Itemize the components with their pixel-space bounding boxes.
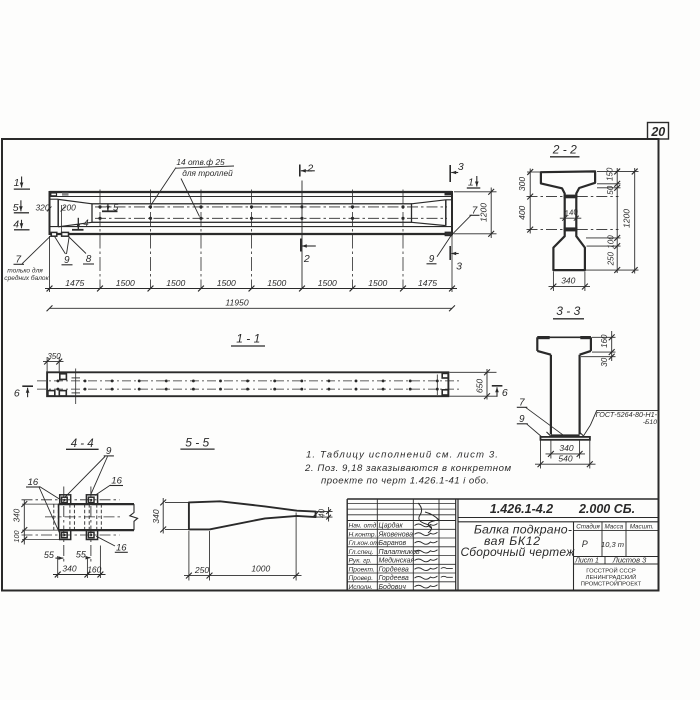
svg-text:2. Поз. 9,18 заказываются в ко: 2. Поз. 9,18 заказываются в конкретном	[304, 463, 512, 474]
svg-text:2 - 2: 2 - 2	[552, 143, 577, 157]
svg-text:6: 6	[14, 388, 20, 400]
svg-text:ГОССТРОЙ СССР: ГОССТРОЙ СССР	[586, 566, 636, 574]
svg-text:340: 340	[559, 443, 573, 453]
svg-text:340: 340	[13, 508, 22, 522]
svg-text:30: 30	[600, 357, 609, 366]
svg-text:10,3 т: 10,3 т	[601, 540, 624, 549]
svg-text:1.426.1-4.2: 1.426.1-4.2	[490, 502, 553, 516]
svg-text:140: 140	[564, 207, 579, 218]
svg-text:1: 1	[468, 176, 474, 188]
svg-text:5: 5	[113, 203, 119, 214]
svg-text:6: 6	[502, 387, 508, 399]
svg-text:7: 7	[472, 205, 478, 216]
svg-text:Р: Р	[582, 539, 588, 549]
svg-text:100: 100	[607, 235, 616, 249]
svg-text:Мединская: Мединская	[379, 557, 415, 565]
svg-text:4: 4	[83, 218, 88, 229]
svg-text:250: 250	[607, 251, 616, 266]
svg-text:1500: 1500	[217, 278, 236, 288]
svg-text:20: 20	[650, 125, 665, 139]
svg-text:55: 55	[76, 549, 87, 559]
svg-text:540: 540	[558, 454, 572, 464]
svg-text:1200: 1200	[479, 203, 489, 222]
svg-text:1500: 1500	[318, 278, 337, 288]
svg-text:Нач. отд: Нач. отд	[349, 522, 377, 530]
svg-text:1 - 1: 1 - 1	[236, 332, 260, 346]
svg-text:-Б10: -Б10	[643, 419, 657, 426]
svg-text:50: 50	[606, 185, 615, 194]
svg-text:4: 4	[13, 219, 19, 231]
svg-text:3 - 3: 3 - 3	[556, 304, 580, 318]
svg-text:ГОСТ-5264-80-Н1-: ГОСТ-5264-80-Н1-	[596, 410, 658, 419]
svg-text:Провер.: Провер.	[349, 575, 374, 582]
svg-text:2: 2	[303, 253, 310, 265]
svg-text:для троллей: для троллей	[182, 168, 233, 178]
svg-text:Рук. гр.: Рук. гр.	[349, 558, 372, 565]
svg-text:1000: 1000	[251, 564, 270, 574]
svg-text:средних балок: средних балок	[4, 274, 49, 282]
svg-text:Проект.: Проект.	[349, 566, 375, 573]
svg-text:Н.контр.: Н.контр.	[349, 531, 377, 538]
svg-text:250: 250	[194, 565, 209, 575]
svg-text:1475: 1475	[65, 278, 84, 288]
svg-text:5 - 5: 5 - 5	[185, 436, 209, 450]
svg-text:1200: 1200	[622, 209, 632, 228]
svg-text:ЛЕНИНГРАДСКИЙ: ЛЕНИНГРАДСКИЙ	[586, 573, 637, 581]
svg-text:Сборочный чертеж: Сборочный чертеж	[460, 545, 575, 559]
svg-text:2.000 СБ.: 2.000 СБ.	[578, 502, 635, 516]
svg-text:Исполн.: Исполн.	[349, 584, 374, 591]
svg-text:Гордеева: Гордеева	[379, 574, 409, 582]
svg-text:8: 8	[86, 254, 92, 265]
svg-text:Гордеева: Гордеева	[379, 565, 409, 573]
svg-text:только для: только для	[7, 266, 43, 274]
svg-text:300: 300	[517, 177, 527, 191]
svg-text:Палатников: Палатников	[379, 549, 421, 556]
svg-text:340: 340	[62, 564, 76, 574]
svg-text:1475: 1475	[418, 278, 437, 288]
svg-text:Стадия: Стадия	[576, 523, 600, 531]
svg-text:350: 350	[47, 352, 61, 361]
svg-text:Масса: Масса	[604, 524, 623, 531]
svg-text:200: 200	[61, 203, 76, 213]
svg-text:400: 400	[517, 205, 527, 219]
svg-text:340: 340	[561, 275, 575, 285]
svg-text:Листов 3: Листов 3	[612, 555, 647, 564]
svg-text:Гл.кон.от: Гл.кон.от	[349, 540, 380, 547]
svg-text:Бодович: Бодович	[379, 583, 407, 591]
svg-text:40: 40	[317, 509, 326, 518]
svg-text:2: 2	[306, 163, 313, 175]
svg-text:Масшт.: Масшт.	[630, 524, 654, 531]
svg-text:проекте по черт 1.426.1-41 i: проекте по черт 1.426.1-41 i обо.	[321, 475, 489, 486]
svg-text:1500: 1500	[166, 278, 185, 288]
svg-text:Яковенова: Яковенова	[378, 531, 414, 538]
svg-text:160: 160	[600, 334, 609, 348]
svg-text:ПРОМСТРОЙПРОЕКТ: ПРОМСТРОЙПРОЕКТ	[581, 579, 642, 587]
svg-text:1500: 1500	[368, 278, 387, 288]
svg-text:650: 650	[474, 379, 484, 393]
svg-text:Гл.спец.: Гл.спец.	[349, 549, 374, 556]
svg-text:340: 340	[151, 509, 161, 523]
svg-text:1. Таблицу исполнений см. лис: 1. Таблицу исполнений см. лист 3.	[306, 450, 499, 461]
svg-text:1: 1	[14, 177, 20, 189]
svg-text:Цардак: Цардак	[379, 522, 404, 530]
svg-text:150: 150	[606, 167, 615, 181]
svg-text:160: 160	[87, 564, 101, 574]
svg-text:3: 3	[456, 261, 462, 273]
svg-text:4 - 4: 4 - 4	[71, 438, 94, 450]
svg-text:Лист 1: Лист 1	[574, 557, 599, 564]
svg-text:1500: 1500	[267, 278, 286, 288]
svg-text:3: 3	[458, 161, 464, 173]
svg-text:11950: 11950	[225, 298, 248, 308]
svg-text:14 отв.ф 25: 14 отв.ф 25	[176, 157, 225, 167]
svg-text:55: 55	[44, 550, 55, 560]
svg-text:Баранов: Баранов	[379, 540, 407, 547]
svg-text:100: 100	[12, 531, 21, 543]
svg-text:7: 7	[519, 397, 525, 408]
svg-text:9: 9	[519, 414, 525, 425]
svg-text:1500: 1500	[116, 278, 135, 288]
